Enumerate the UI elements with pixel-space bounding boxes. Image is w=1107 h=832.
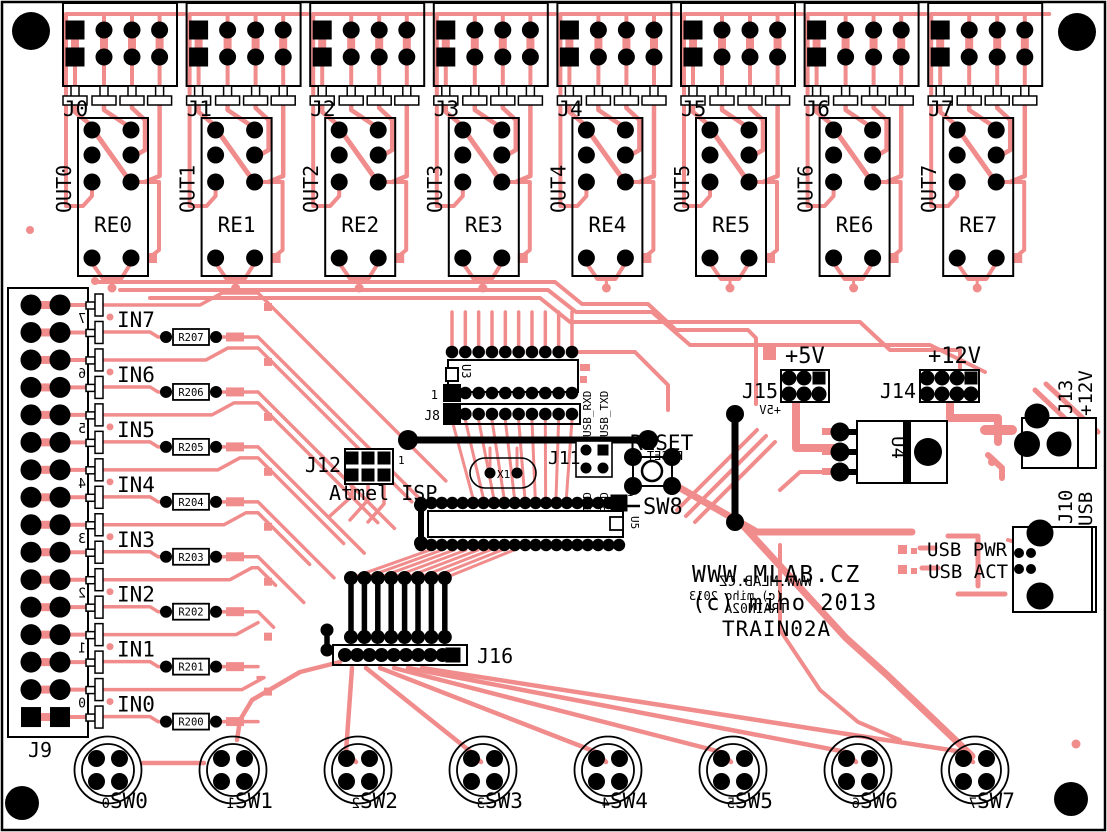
terminal-mark	[86, 329, 95, 336]
pad	[207, 250, 224, 267]
pad	[741, 147, 758, 164]
copper-mirror-text: RESET	[647, 449, 683, 463]
trace	[988, 455, 1002, 478]
terminal-mark	[95, 706, 103, 728]
via	[107, 478, 114, 485]
signal-label: USB_TXD	[598, 391, 611, 437]
copper-pad-stub	[264, 688, 272, 696]
pad	[331, 174, 348, 191]
pad-square	[610, 495, 627, 512]
copper-pad-stub	[226, 333, 244, 342]
terminal-mark	[92, 96, 116, 105]
pad	[338, 750, 355, 767]
pad	[236, 773, 253, 790]
copper-mirror-digit: 6	[852, 796, 860, 812]
u3-label: U3	[459, 364, 473, 378]
trace	[996, 182, 1024, 258]
pad	[466, 22, 483, 39]
pad	[949, 250, 966, 267]
pad	[21, 542, 42, 563]
pad	[499, 387, 512, 400]
pad	[825, 174, 842, 191]
pad	[123, 250, 140, 267]
trace	[131, 182, 159, 258]
trace	[99, 442, 166, 447]
pad	[21, 569, 42, 590]
pad	[539, 408, 552, 421]
via	[107, 368, 114, 375]
pad	[988, 174, 1005, 191]
pad	[714, 22, 731, 39]
switch-label: SW4	[610, 789, 648, 813]
pad	[578, 147, 595, 164]
wire-jumper-pad	[411, 630, 425, 644]
via	[726, 284, 735, 293]
connector-label: J3	[434, 97, 459, 121]
trace	[216, 612, 274, 628]
wire-jumper-pad	[726, 513, 744, 531]
trace	[99, 607, 166, 612]
pad	[1014, 564, 1024, 574]
pad	[512, 387, 525, 400]
power-header-5v-j15	[781, 370, 829, 402]
pad	[219, 49, 236, 66]
usb-act-label: USB ACT	[928, 561, 1008, 583]
pad	[493, 122, 510, 139]
wire-jumper-pad	[344, 571, 358, 585]
pad	[494, 49, 511, 66]
pad	[782, 371, 797, 386]
copper-mirror-digit: 3	[78, 532, 86, 547]
pad	[160, 441, 172, 453]
pad	[566, 346, 579, 359]
terminal-mark	[271, 96, 295, 105]
pad	[454, 147, 471, 164]
pad	[566, 387, 579, 400]
via	[107, 423, 114, 430]
pad	[588, 750, 605, 767]
pad	[21, 322, 42, 343]
usb-pwr-label: USB PWR	[927, 539, 1008, 561]
pad-square	[807, 21, 826, 40]
pad-square	[436, 21, 455, 40]
terminal-mark	[120, 96, 144, 105]
pad	[50, 295, 71, 316]
trace	[950, 403, 998, 442]
pad	[893, 49, 910, 66]
copper-pad-stub	[264, 578, 272, 586]
pad	[50, 542, 71, 563]
copper-mirror-digit: 3	[78, 532, 86, 547]
pad	[362, 648, 376, 662]
pad	[702, 250, 719, 267]
pad	[736, 750, 753, 767]
j9-label: J9	[28, 738, 52, 762]
u4-hole	[914, 438, 942, 466]
pad	[21, 349, 42, 370]
terminal-mark	[86, 577, 95, 584]
pad	[741, 122, 758, 139]
pad	[160, 551, 172, 563]
terminal-mark	[86, 494, 95, 501]
wire-jumper-pad	[371, 571, 385, 585]
pad	[1014, 548, 1024, 558]
pad-square	[684, 48, 703, 67]
pad	[935, 371, 950, 386]
pad-square	[807, 48, 826, 67]
trace	[502, 182, 530, 258]
wire-jumper-pad	[398, 571, 412, 585]
terminal-mark	[985, 96, 1009, 105]
pad	[864, 174, 881, 191]
pad	[50, 322, 71, 343]
pad	[838, 750, 855, 767]
output-label: OUT0	[52, 165, 76, 213]
terminal-mark	[367, 96, 391, 105]
pad	[949, 122, 966, 139]
via	[91, 277, 99, 285]
j13-hole	[1047, 432, 1072, 457]
terminal-mark	[95, 294, 103, 316]
aux-header-j16	[333, 645, 467, 665]
pad	[1026, 548, 1036, 558]
input-label: IN6	[117, 363, 155, 387]
trace	[378, 182, 406, 258]
wire-jumper-pad	[438, 630, 452, 644]
copper-pad-stub	[264, 303, 272, 311]
copper-mirror-digit: 2	[78, 587, 86, 602]
pad	[399, 648, 413, 662]
pad	[213, 773, 230, 790]
j9-outline	[8, 288, 88, 737]
wire-jumper-pad	[424, 571, 438, 585]
pad	[387, 648, 401, 662]
j13-hole	[1025, 404, 1050, 429]
pad	[84, 147, 101, 164]
pad-square	[965, 372, 978, 385]
pad	[741, 250, 758, 267]
terminal-mark	[95, 376, 103, 398]
u3-notch	[446, 368, 458, 381]
wire-jumper-pad	[726, 405, 744, 423]
pad	[123, 147, 140, 164]
terminal-mark	[339, 96, 363, 105]
usb-connector-j10	[1013, 520, 1096, 613]
pad	[246, 147, 263, 164]
pad	[371, 22, 388, 39]
copper-pad-stub	[264, 358, 272, 366]
pad	[646, 49, 663, 66]
mounting-hole	[5, 786, 39, 820]
connector-label: J2	[310, 97, 335, 121]
pad	[1016, 22, 1033, 39]
pad	[50, 597, 71, 618]
pad	[512, 408, 525, 421]
pad	[21, 459, 42, 480]
pad	[459, 346, 472, 359]
copper-mirror-digit: 1	[627, 486, 634, 499]
pad-square	[443, 405, 461, 423]
copper-mirror-digit: 6	[78, 367, 86, 382]
pad	[472, 408, 485, 421]
relay-label: RE6	[836, 213, 874, 237]
pad	[646, 22, 663, 39]
pad	[50, 514, 71, 535]
terminal-mark	[95, 651, 103, 673]
switch-label: SW6	[860, 789, 898, 813]
copper-pad-stub	[264, 468, 272, 476]
isp-header-j12	[345, 449, 393, 484]
terminal-mark	[86, 357, 95, 364]
relay-label: RE7	[959, 213, 997, 237]
switch-label: SW0	[110, 789, 148, 813]
copper-mirror-text: +5V	[759, 403, 781, 417]
pad	[207, 174, 224, 191]
pad	[472, 387, 485, 400]
pad	[338, 648, 352, 662]
copper-mirror-digit: 7	[78, 312, 86, 327]
pad-square	[560, 48, 579, 67]
pad	[111, 750, 128, 767]
pad	[825, 122, 842, 139]
terminal-mark	[86, 632, 95, 639]
pad	[463, 773, 480, 790]
serial-header-j11	[576, 441, 612, 477]
pad	[831, 423, 850, 442]
pad	[207, 122, 224, 139]
pad	[96, 22, 113, 39]
copper-pad-stub	[226, 607, 244, 616]
pad	[988, 122, 1005, 139]
output-label: OUT4	[546, 165, 570, 213]
j8-label: J8	[424, 409, 440, 424]
pad	[526, 408, 539, 421]
copper-mirror-digit: 6	[852, 796, 860, 812]
copper-mirror-digit: 1	[78, 642, 86, 657]
pad	[499, 346, 512, 359]
copper-mirror-digit: 4	[602, 796, 610, 812]
pad	[50, 404, 71, 425]
pad	[275, 49, 292, 66]
pad	[702, 147, 719, 164]
pad	[864, 147, 881, 164]
pad	[741, 174, 758, 191]
terminal-mark	[1013, 96, 1037, 105]
pad	[21, 295, 42, 316]
wire-jumper-pad	[438, 571, 452, 585]
terminal-mark	[95, 596, 103, 618]
terminal-mark	[95, 431, 103, 453]
pad-square	[560, 21, 579, 40]
resistor-label: R205	[178, 442, 203, 454]
terminal-mark	[95, 624, 103, 646]
terminal-mark	[95, 569, 103, 591]
copper-mirror-digit: 4	[78, 477, 86, 492]
mounting-hole	[12, 12, 50, 50]
copper-mirror-digit: 7	[78, 312, 86, 327]
terminal-mark	[518, 96, 542, 105]
pad-square	[443, 384, 461, 402]
pad	[617, 122, 634, 139]
terminal-mark	[86, 522, 95, 529]
pad	[21, 597, 42, 618]
copper-pad-stub	[898, 545, 907, 554]
pad	[454, 250, 471, 267]
pad	[370, 147, 387, 164]
pad-square	[436, 48, 455, 67]
pad-square	[346, 452, 359, 465]
terminal-mark	[86, 302, 95, 309]
pad	[50, 349, 71, 370]
pad	[578, 174, 595, 191]
connector-label: J1	[187, 97, 212, 121]
terminal-mark	[95, 514, 103, 536]
pad	[454, 174, 471, 191]
connector-label: J5	[681, 97, 706, 121]
terminal-mark	[86, 467, 95, 474]
trace	[686, 436, 766, 516]
output-label: OUT7	[917, 165, 941, 213]
trace	[216, 502, 334, 578]
terminal-mark	[244, 96, 268, 105]
pad	[207, 147, 224, 164]
pad	[955, 750, 972, 767]
pad	[361, 773, 378, 790]
pad	[837, 49, 854, 66]
pad	[989, 49, 1006, 66]
board-copyright-label: (c) miho 2013	[692, 591, 877, 616]
pad	[361, 750, 378, 767]
terminal-mark	[834, 96, 858, 105]
pad	[275, 22, 292, 39]
pad	[21, 487, 42, 508]
pad	[797, 371, 812, 386]
trace	[237, 662, 340, 740]
pad-square	[346, 469, 359, 482]
copper-pad-stub	[226, 387, 244, 396]
copper-mirror-digit: 5	[727, 796, 735, 812]
copper-mirror-text: RESET	[647, 449, 683, 463]
signal-label: RXD	[598, 492, 611, 512]
copper-mirror-digit: 0	[102, 796, 110, 812]
via	[355, 284, 364, 293]
pad	[702, 174, 719, 191]
via	[849, 284, 858, 293]
output-label: OUT1	[176, 165, 200, 213]
wire-jumper-pad	[398, 430, 418, 450]
terminal-mark	[86, 439, 95, 446]
wire-jumper-pad	[398, 630, 412, 644]
copper-mirror-digit: 1	[227, 796, 235, 812]
pad	[210, 331, 222, 343]
pad	[247, 49, 264, 66]
terminal-mark	[614, 96, 638, 105]
pad	[950, 387, 965, 402]
wire-jumper-pad	[357, 630, 371, 644]
copper-pad-stub	[226, 552, 244, 561]
pad	[446, 346, 459, 359]
pad-square	[189, 21, 208, 40]
pad	[331, 250, 348, 267]
pad	[398, 22, 415, 39]
wire-jumper-pad	[321, 624, 334, 637]
power-header-12v-j14	[920, 370, 980, 402]
input-label: IN5	[117, 418, 155, 442]
pad	[949, 174, 966, 191]
pad	[512, 346, 525, 359]
connector-label: J4	[557, 97, 582, 121]
copper-pad-stub	[226, 662, 244, 671]
pad	[50, 624, 71, 645]
trace	[625, 182, 653, 258]
copper-pad-stub	[763, 347, 776, 360]
pad	[247, 22, 264, 39]
pad	[50, 679, 71, 700]
j15-label: J15	[742, 379, 778, 403]
pad	[539, 346, 552, 359]
terminal-mark	[957, 96, 981, 105]
terminal-mark	[148, 96, 172, 105]
u4-label: U4	[887, 436, 909, 459]
copper-mirror-digit: 0	[102, 796, 110, 812]
pad	[331, 122, 348, 139]
pad	[21, 404, 42, 425]
pad-square	[446, 648, 461, 663]
plus12v-label: +12V	[928, 344, 981, 369]
pad	[522, 22, 539, 39]
pad	[713, 750, 730, 767]
trace	[532, 420, 535, 497]
pad	[486, 346, 499, 359]
pad	[989, 22, 1006, 39]
pad	[84, 250, 101, 267]
trace	[99, 552, 166, 557]
pad	[210, 716, 222, 728]
resistor-label: R203	[178, 552, 203, 564]
pad	[864, 250, 881, 267]
board-site-label: WWW.MLAB.CZ	[692, 562, 861, 588]
terminal-mark	[766, 96, 790, 105]
terminal-mark	[95, 541, 103, 563]
resistor-label: R207	[178, 332, 203, 344]
pad	[831, 463, 850, 482]
mounting-hole	[1058, 13, 1096, 51]
input-label: IN3	[117, 528, 155, 552]
wire-jumper-pad	[424, 630, 438, 644]
copper-mirror-digit: 3	[477, 796, 485, 812]
pad	[160, 716, 172, 728]
resistor-label: R202	[178, 607, 203, 619]
wire-jumper-pad	[357, 571, 371, 585]
switch-label: SW1	[235, 789, 273, 813]
pad	[210, 661, 222, 673]
resistor-label: R204	[178, 497, 203, 509]
pad	[663, 477, 681, 495]
j13-hole	[1014, 431, 1040, 457]
pad	[210, 496, 222, 508]
pad	[736, 773, 753, 790]
signal-label: USB_RXD	[581, 391, 594, 437]
pad	[588, 773, 605, 790]
pad	[21, 652, 42, 673]
copper-mirror-digit: 6	[78, 367, 86, 382]
pad	[21, 624, 42, 645]
copper-mirror-digit: 7	[969, 796, 977, 812]
pad	[961, 49, 978, 66]
pad-square	[598, 445, 609, 456]
j16-label: J16	[477, 644, 513, 668]
copper-mirror-digit: 1	[627, 486, 634, 499]
